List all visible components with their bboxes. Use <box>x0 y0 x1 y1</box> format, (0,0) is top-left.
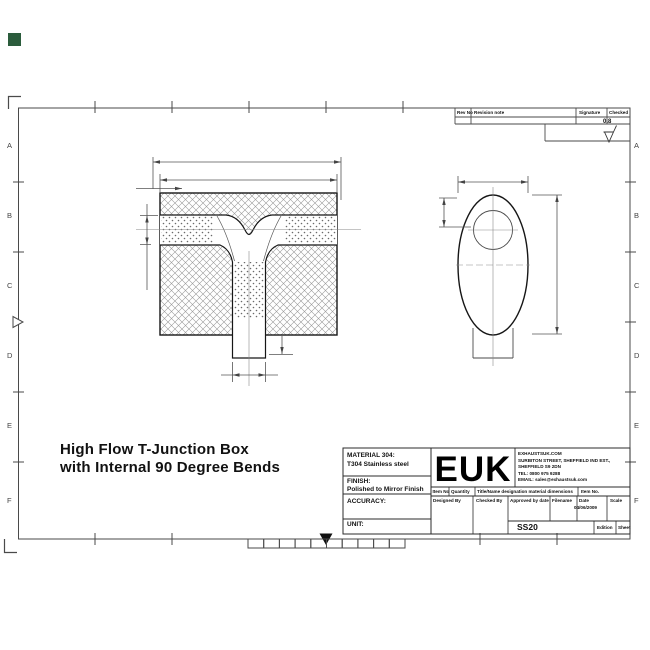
approved-label: Approved by date <box>510 498 549 503</box>
left-pipe-stipple <box>161 217 213 244</box>
item-no2-header: Item No. <box>581 489 599 494</box>
row-label-right-a: A <box>634 142 639 150</box>
item-no-header: Item No <box>433 489 450 494</box>
rev-no-header: Rev No <box>457 110 473 115</box>
row-label-left-e: E <box>7 422 12 430</box>
row-label-right-d: D <box>634 352 639 360</box>
signature-header: Signature <box>579 110 600 115</box>
title-name-header: Title/Name designation material dimensio… <box>477 489 573 494</box>
row-label-left-d: D <box>7 352 12 360</box>
company-address2: SHEFFIELD S9 2DN <box>518 464 561 469</box>
company-email: EMAIL: sales@exhaustsuk.com <box>518 477 587 482</box>
material-value: T304 Stainless steel <box>347 461 409 468</box>
designed-by-label: Designed By <box>433 498 461 503</box>
unit-label: UNIT: <box>347 521 364 528</box>
company-logo: EUK <box>433 451 513 490</box>
company-website: EXHAUSTSUK.COM <box>518 451 562 456</box>
date-label: Date <box>579 498 589 503</box>
scale-label: Scale <box>610 498 622 503</box>
drawing-title-line2: with Internal 90 Degree Bends <box>60 460 280 477</box>
drawing-title-line1: High Flow T-Junction Box <box>60 442 249 459</box>
row-label-right-c: C <box>634 282 639 290</box>
revision-note-header: Revision note <box>474 110 504 115</box>
date-value: 04/06/2009 <box>574 505 597 510</box>
material-label: MATERIAL 304: <box>347 452 395 459</box>
filename-label: Filename <box>552 498 572 503</box>
front-view <box>136 157 361 386</box>
row-label-left-f: F <box>7 497 12 505</box>
surface-finish-value: 0.8 <box>603 119 611 126</box>
finish-value: Polished to Mirror Finish <box>347 486 424 493</box>
drawing-number: SS20 <box>517 523 538 532</box>
row-label-right-f: F <box>634 497 639 505</box>
checked-header: Checked <box>609 110 628 115</box>
drawing-sheet: A B C D E F A B C D E F Rev No Revision … <box>0 0 650 650</box>
company-tel: TEL: 0800 975 9288 <box>518 471 560 476</box>
accuracy-label: ACCURACY: <box>347 498 386 505</box>
drawing-linework <box>0 0 650 650</box>
scale-bar <box>248 539 405 548</box>
checked-by-label: Checked By <box>476 498 502 503</box>
quantity-header: Quantity <box>451 489 470 494</box>
edition-label: Edition <box>597 525 613 530</box>
row-label-left-a: A <box>7 142 12 150</box>
row-label-left-c: C <box>7 282 12 290</box>
finish-label: FINISH: <box>347 478 370 485</box>
company-address1: SURBITON STREET, SHEFFIELD IND EST., <box>518 458 610 463</box>
side-view <box>439 176 562 366</box>
row-label-right-e: E <box>634 422 639 430</box>
sheet-label: Sheet <box>618 525 631 530</box>
row-label-left-b: B <box>7 212 12 220</box>
roughness-symbol <box>604 126 617 143</box>
row-label-right-b: B <box>634 212 639 220</box>
right-pipe-stipple <box>285 217 336 244</box>
